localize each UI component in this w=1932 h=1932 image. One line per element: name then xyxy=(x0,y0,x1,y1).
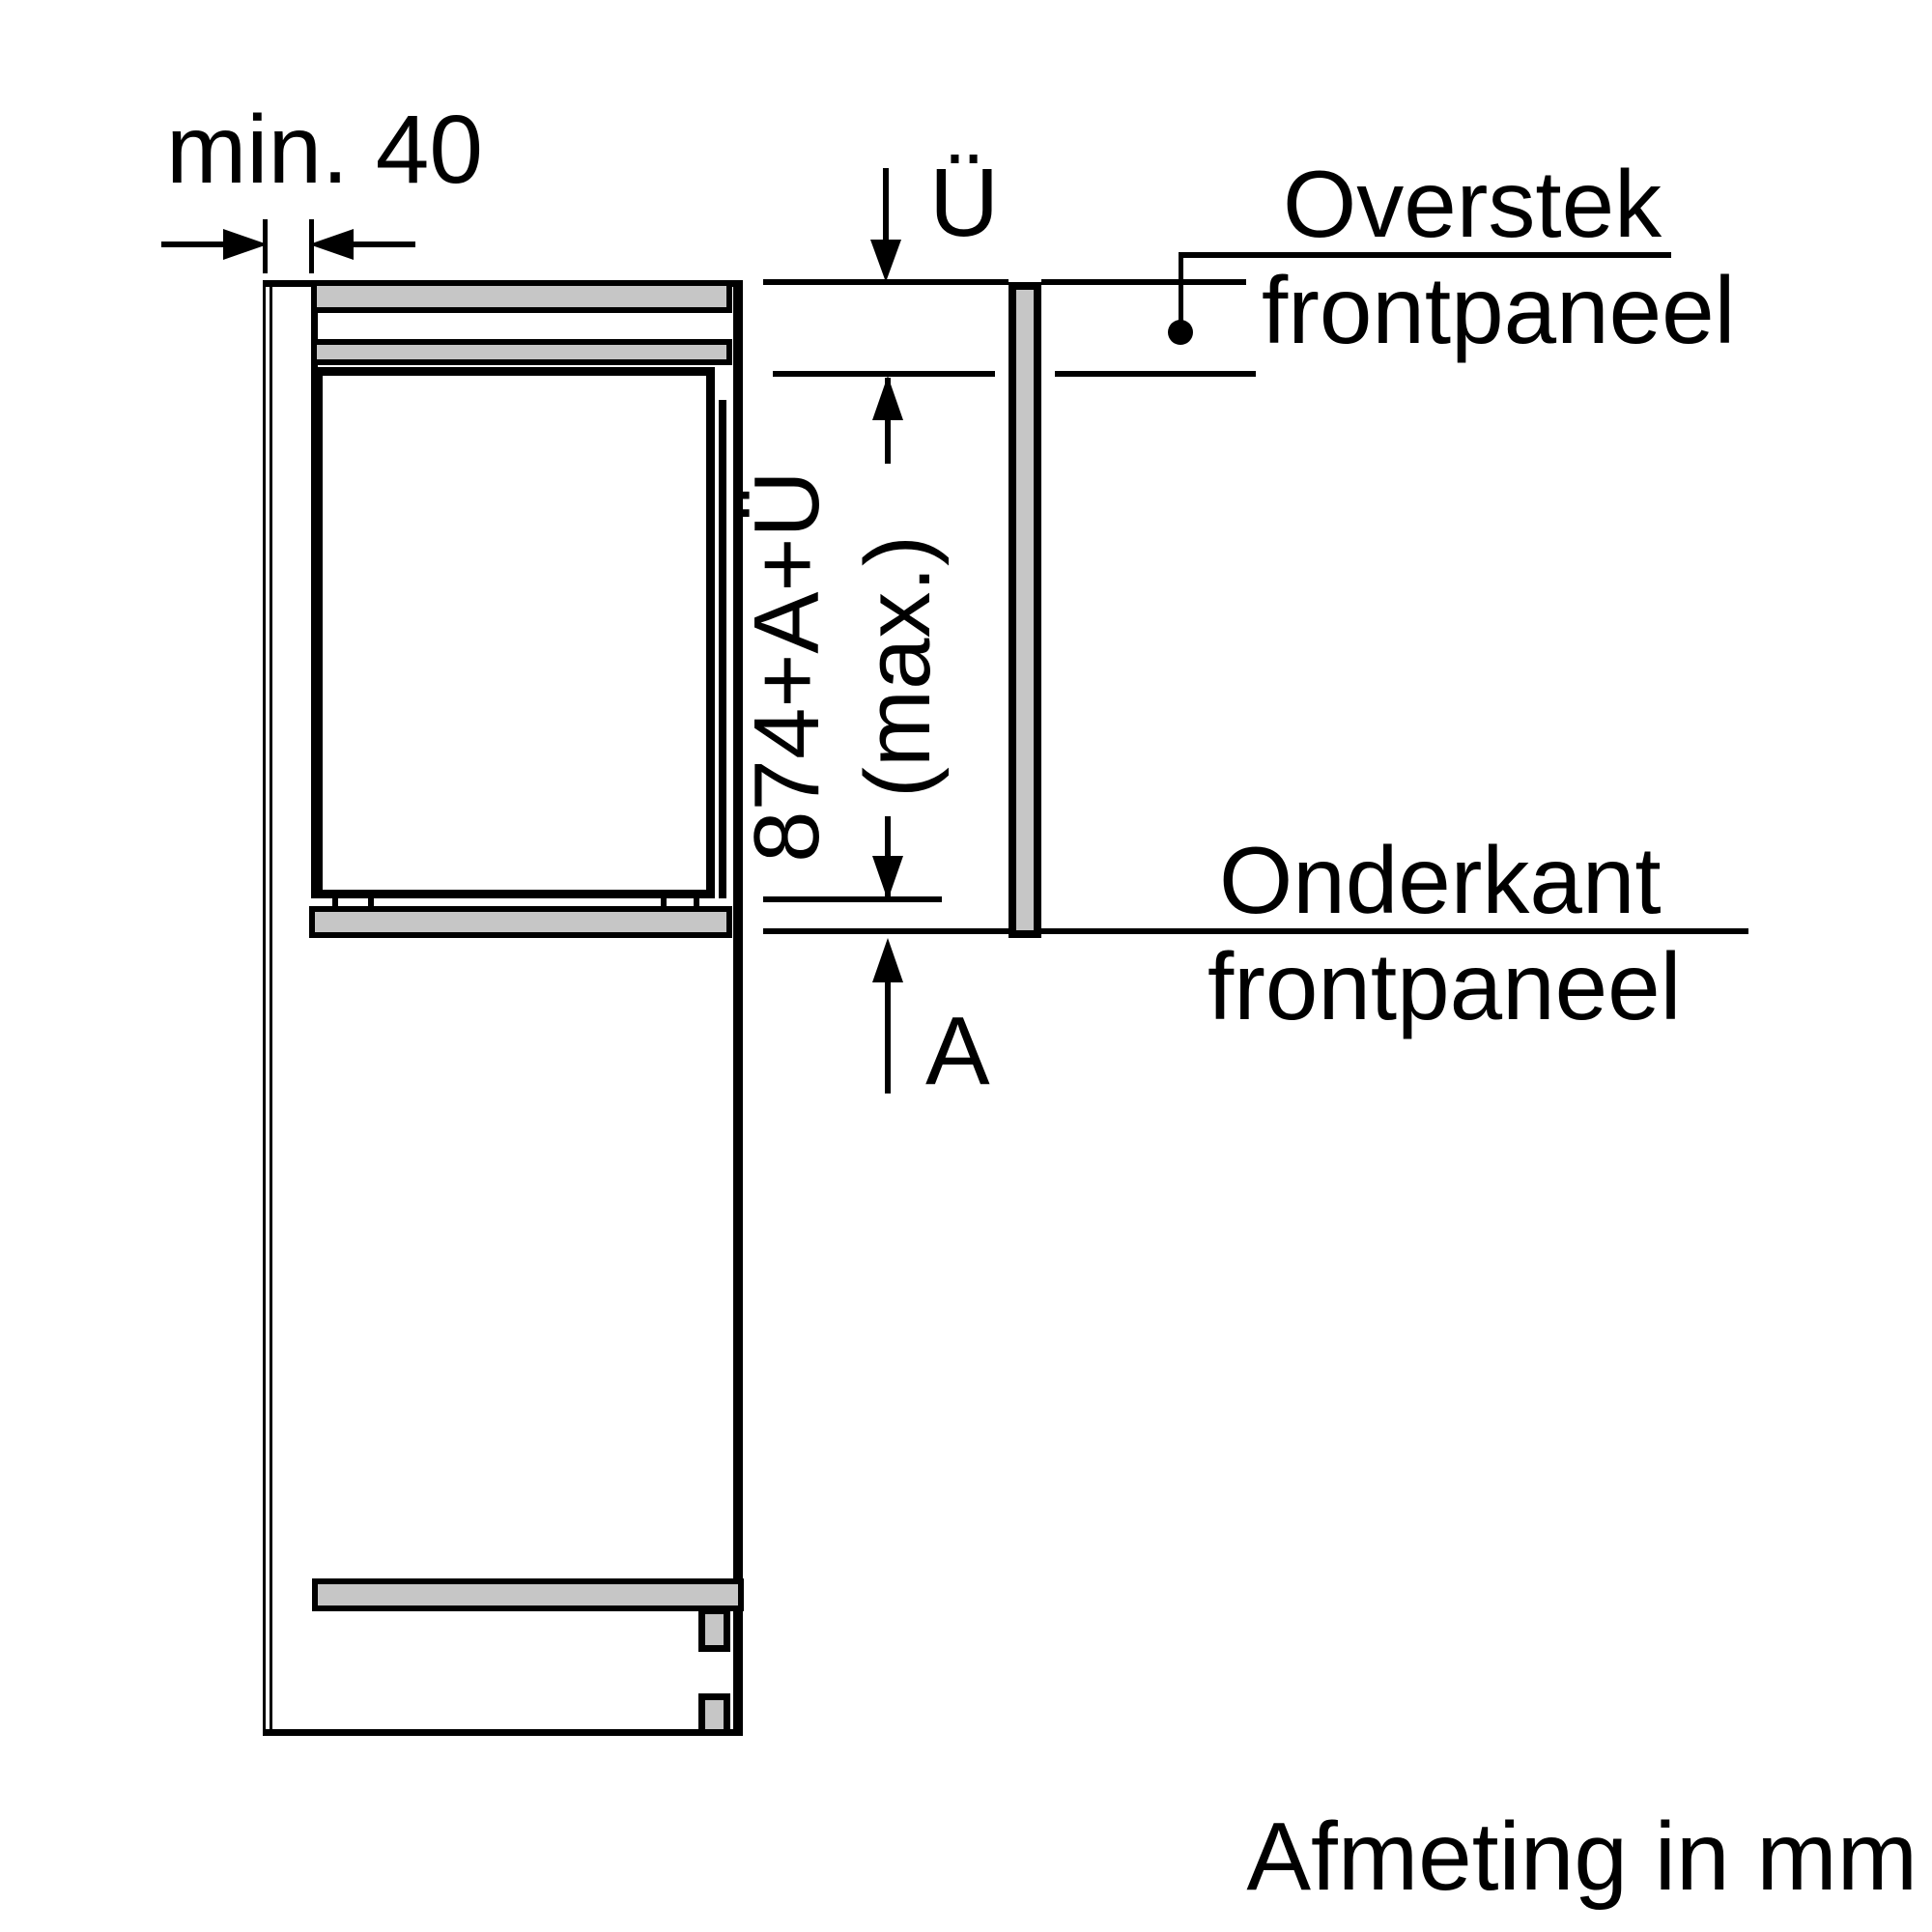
overstek-leader-dot xyxy=(1168,320,1193,345)
min40-label: min. 40 xyxy=(166,101,483,198)
a-arrowhead-up xyxy=(872,938,903,982)
front-panel-bar xyxy=(1009,282,1041,938)
ue-label: Ü xyxy=(929,155,999,251)
top-vent-strip xyxy=(311,280,732,313)
ue-arrow-line xyxy=(883,168,889,243)
cabinet-bottom-line xyxy=(263,1729,743,1736)
niche-top-line-right xyxy=(1055,371,1256,377)
min40-arrowhead-right xyxy=(309,229,354,260)
left-wall-outer-line xyxy=(263,280,266,1736)
behind-door-line xyxy=(719,400,726,898)
plinth-bar xyxy=(312,1578,744,1611)
dimension-arrowhead-up xyxy=(872,376,903,420)
panel-max-length-value: 874+A+Ü xyxy=(731,435,842,898)
niche-bottom-shelf xyxy=(309,906,732,938)
installation-diagram: min. 40ÜOverstekfrontpaneelOnderkantfron… xyxy=(0,0,1932,1932)
left-wall-inner-line xyxy=(270,280,272,1736)
onderkant-label-line1: Onderkant xyxy=(1219,833,1662,927)
overstek-label-line1: Overstek xyxy=(1283,156,1662,251)
ue-arrowhead-down xyxy=(870,240,901,282)
top-reference-line-right xyxy=(1041,279,1246,285)
overstek-label-line2: frontpaneel xyxy=(1262,263,1735,357)
min40-arrow-line-right xyxy=(354,241,415,247)
panel-max-length-qualifier: (max.) xyxy=(842,435,953,898)
min40-arrowhead-left xyxy=(223,229,268,260)
a-arrow-line xyxy=(885,980,891,1094)
hinge-block-lower xyxy=(698,1693,730,1736)
overstek-leader-drop xyxy=(1179,252,1183,322)
panel-max-length-label: 874+A+Ü(max.) xyxy=(731,435,953,898)
appliance-door-box xyxy=(314,367,715,898)
onderkant-label-line2: frontpaneel xyxy=(1207,939,1681,1034)
a-label: A xyxy=(925,1003,990,1099)
hinge-block-upper xyxy=(698,1607,730,1652)
units-label: Afmeting in mm xyxy=(1246,1808,1918,1905)
second-vent-strip xyxy=(311,339,732,365)
min40-arrow-line-left xyxy=(161,241,223,247)
